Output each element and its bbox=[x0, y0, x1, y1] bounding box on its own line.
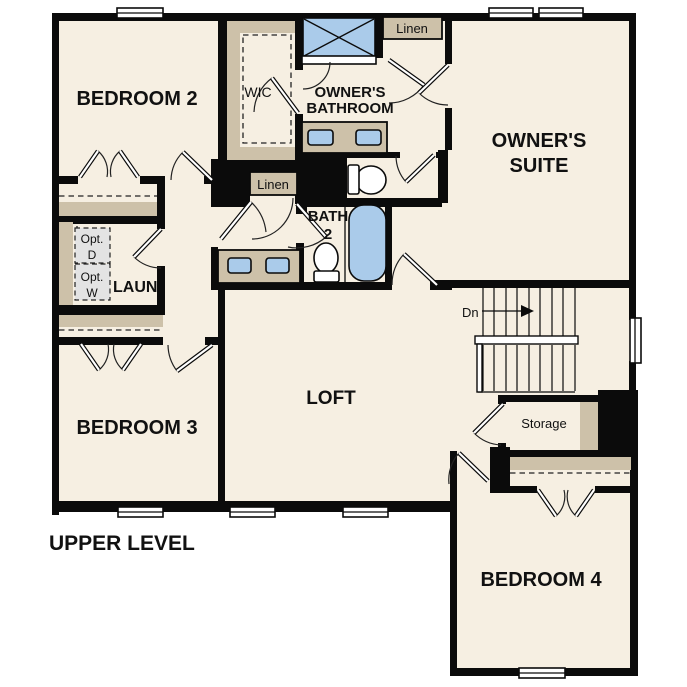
toilet-bath2 bbox=[314, 243, 339, 282]
plan-title: UPPER LEVEL bbox=[49, 532, 195, 555]
window bbox=[630, 318, 641, 363]
floor-plan-page: BEDROOM 2 WIC OWNER'S BATHROOM Linen OWN… bbox=[0, 0, 687, 687]
bedroom2-closet-shelf bbox=[59, 202, 157, 216]
window bbox=[118, 507, 163, 517]
bedroom4-wing-floor bbox=[453, 449, 633, 672]
double-vanity-owners bbox=[302, 122, 387, 153]
sink bbox=[308, 130, 333, 145]
sink bbox=[228, 258, 251, 273]
toilet-owners bbox=[348, 165, 386, 194]
window bbox=[117, 8, 163, 18]
label-opt-washer-2: W bbox=[86, 286, 98, 300]
floor-plan: BEDROOM 2 WIC OWNER'S BATHROOM Linen OWN… bbox=[0, 0, 687, 687]
shower bbox=[302, 18, 376, 64]
label-wic: WIC bbox=[244, 84, 271, 100]
label-bath2-2: 2 bbox=[324, 226, 332, 243]
label-owners-suite-1: OWNER'S bbox=[492, 130, 587, 152]
label-bedroom3: BEDROOM 3 bbox=[76, 417, 197, 439]
label-bedroom4: BEDROOM 4 bbox=[480, 569, 602, 591]
label-loft: LOFT bbox=[306, 388, 356, 409]
label-opt-washer-1: Opt. bbox=[81, 270, 104, 284]
bathtub bbox=[345, 205, 386, 282]
window bbox=[343, 507, 388, 517]
sink bbox=[356, 130, 381, 145]
bedroom3-closet-shelf bbox=[59, 315, 163, 327]
wic-shelf bbox=[227, 21, 295, 33]
label-owners-bathroom-2: BATHROOM bbox=[306, 100, 393, 117]
label-bath2-1: BATH bbox=[308, 208, 349, 225]
label-owners-suite-2: SUITE bbox=[510, 155, 569, 177]
window bbox=[539, 8, 583, 18]
label-linen-hall: Linen bbox=[257, 177, 289, 192]
double-vanity-bath2 bbox=[218, 250, 300, 283]
wic-shelf bbox=[227, 147, 295, 160]
storage-shelf bbox=[580, 402, 598, 450]
stair-stringer bbox=[477, 344, 482, 392]
label-owners-bathroom-1: OWNER'S bbox=[314, 84, 385, 101]
window bbox=[519, 668, 565, 678]
label-bedroom2: BEDROOM 2 bbox=[76, 88, 197, 110]
window bbox=[489, 8, 533, 18]
stair-handrail bbox=[475, 336, 578, 344]
label-laundry: LAUN bbox=[113, 279, 157, 296]
label-opt-dryer-2: D bbox=[88, 248, 97, 262]
laundry-shelf bbox=[59, 222, 73, 305]
label-linen-upper: Linen bbox=[396, 21, 428, 36]
label-storage: Storage bbox=[521, 416, 567, 431]
label-stairs-dn: Dn bbox=[462, 305, 479, 320]
sink bbox=[266, 258, 289, 273]
label-opt-dryer-1: Opt. bbox=[81, 232, 104, 246]
window bbox=[230, 507, 275, 517]
wic-shelf bbox=[227, 21, 240, 160]
bedroom4-closet-shelf bbox=[510, 457, 631, 470]
